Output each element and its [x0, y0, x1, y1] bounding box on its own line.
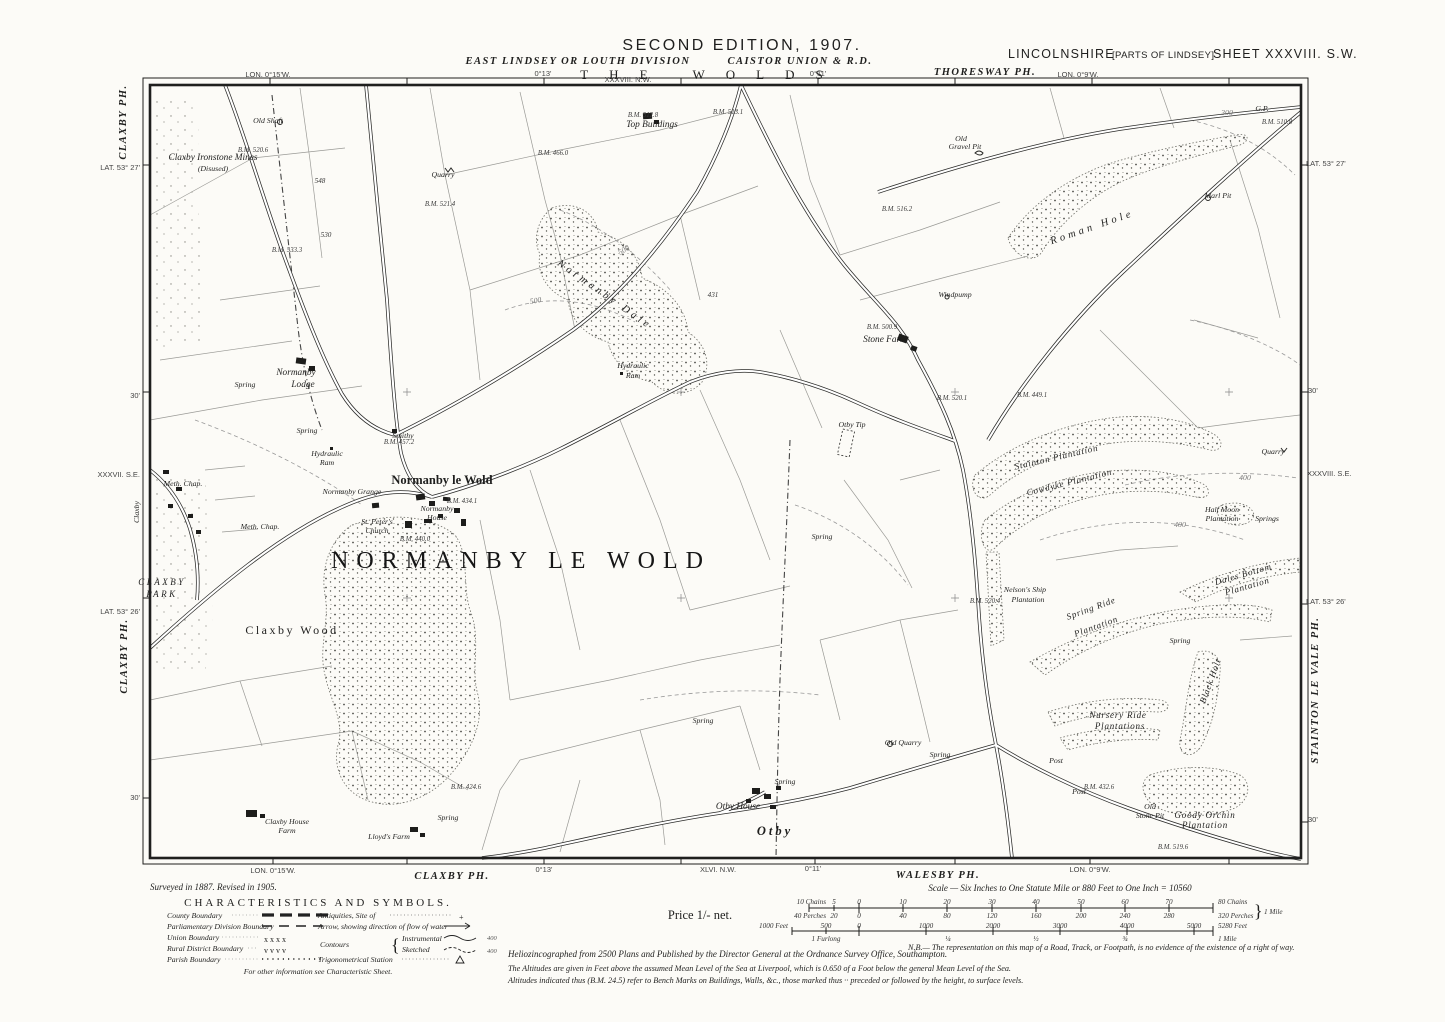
scale-label-18: 160 — [1031, 912, 1042, 920]
scale-label-11: 80 Chains — [1218, 898, 1248, 906]
map-label-4: Top Buildings — [626, 120, 678, 130]
thoresway-parish: THORESWAY PH. — [934, 67, 1036, 78]
margins-label-1: 0°13' — [535, 69, 553, 78]
spots-label-0: 548 — [315, 177, 326, 185]
rights-of-way-note: N.B.— The representation on this map of … — [907, 943, 1294, 952]
map-label-0: Old Shaft — [253, 116, 284, 125]
benchmarks-label-10: B.M. 449.1 — [1017, 392, 1047, 399]
legend-footnote: For other information see Characteristic… — [243, 967, 393, 976]
map-label-10: Windpump — [938, 290, 971, 299]
legend-label-3: Union Boundary — [167, 933, 220, 942]
scale-label-27: 0 — [857, 922, 861, 930]
scale-label-32: 5000 — [1187, 922, 1202, 930]
benchmarks-label-9: B.M. 520.1 — [937, 395, 967, 402]
map-label-30: Meth. Chap. — [240, 522, 280, 531]
legend-label-11: { — [391, 935, 400, 955]
scale-label-20: 240 — [1120, 912, 1131, 920]
altitude-note-2: Altitudes indicated thus (B.M. 24.5) ref… — [507, 976, 1023, 985]
walesby-parish-bottom: WALESBY PH. — [896, 870, 980, 881]
margins-label-18: 30' — [130, 793, 140, 802]
otby-hamlet: Otby — [757, 824, 793, 838]
legend-label-8: Antiquities, Site of — [317, 911, 377, 920]
publication-note: Heliozincographed from 2500 Plans and Pu… — [507, 949, 947, 959]
map-label-60: Old — [1144, 802, 1156, 811]
contours-label-4: 400 — [1174, 520, 1186, 529]
margins-label-16: LAT. 53° 26' — [100, 607, 140, 616]
map-label-49: Plantation — [1011, 595, 1045, 604]
legend-label-7: v v v v — [264, 946, 286, 955]
scale-label-33: 5280 Feet — [1218, 922, 1248, 930]
scale-label-7: 40 — [1032, 898, 1040, 906]
scale-label-6: 30 — [987, 898, 996, 906]
union-rd: CAISTOR UNION & R.D. — [727, 56, 872, 67]
map-label-14: Lodge — [290, 380, 314, 390]
map-label-9: G.P. — [1255, 104, 1268, 113]
margins-label-5: LON. 0°15'W. — [250, 866, 295, 875]
claxby-wood: Claxby Wood — [245, 623, 338, 637]
scale-label-38: 1 Mile — [1218, 935, 1237, 943]
map-label-47: Quarry — [1262, 447, 1285, 456]
scale-label-36: ½ — [1033, 935, 1039, 943]
map-label-38: Spring — [930, 750, 951, 759]
county-title: LINCOLNSHIRE — [1008, 47, 1115, 61]
margins-label-11: LON. 0°9'W. — [1069, 865, 1110, 874]
map-label-44: Half Moon — [1204, 505, 1239, 514]
map-label-67: Farm — [277, 826, 296, 835]
scale-label-1: 10 Chains — [797, 898, 827, 906]
legend-label-12: Instrumental — [401, 934, 442, 943]
map-label-61: Stone Pit — [1136, 811, 1165, 820]
map-label-20: Hydraulic — [616, 361, 649, 370]
margins-label-22: LAT. 53° 26' — [1306, 597, 1346, 606]
stainton-le-vale-parish-right: STAINTON LE VALE PH. — [1310, 617, 1321, 764]
map-label-56: Plantations — [1094, 721, 1145, 731]
map-label-40: Spring — [775, 777, 796, 786]
map-label-26: House — [426, 513, 447, 522]
contours-label-3: 400 — [1239, 473, 1251, 482]
goody-orchin-plantation: Goody Orchin — [1174, 810, 1235, 820]
scale-label-31: 4000 — [1120, 922, 1135, 930]
scale-label-25: 1000 Feet — [759, 922, 789, 930]
margins-label-20: 30' — [1308, 386, 1318, 395]
margins-label-13: LAT. 53° 27' — [100, 163, 140, 172]
map-label-48: Nelson's Ship — [1003, 585, 1046, 594]
map-label-6: Gravel Pit — [949, 142, 983, 151]
legend-label-15: + — [459, 913, 464, 922]
map-label-55: Nursery Ride — [1088, 710, 1146, 720]
scale-statement: Scale — Six Inches to One Statute Mile o… — [928, 883, 1192, 893]
benchmarks-label-3: B.M. 466.0 — [538, 150, 569, 157]
scale-label-12: 40 Perches — [794, 912, 826, 920]
claxby-ironstone-mines: Claxby Ironstone Mines — [169, 153, 258, 163]
legend-label-13: Sketched — [402, 945, 430, 954]
benchmarks-label-8: B.M. 500.9 — [867, 324, 898, 331]
spots-label-2: 431 — [708, 291, 719, 299]
scale-label-5: 20 — [943, 898, 951, 906]
benchmarks-label-13: B.M. 440.0 — [400, 536, 431, 543]
spots-label-1: 530 — [321, 231, 332, 239]
scarp-edge-area — [150, 95, 205, 350]
scale-label-29: 2000 — [986, 922, 1001, 930]
map-label-19: Ram — [319, 458, 335, 467]
claxby-parish-left-lower: CLAXBY PH. — [119, 618, 130, 693]
scale-label-9: 60 — [1121, 898, 1129, 906]
scale-label-26: 500 — [821, 922, 832, 930]
scale-label-37: ¾ — [1122, 935, 1128, 943]
benchmarks-label-1: B.M. 533.3 — [272, 247, 303, 254]
scale-label-10: 70 — [1165, 898, 1173, 906]
contours-label-2: 300 — [1220, 108, 1233, 117]
village-normanby-le-wold: Normanby le Wold — [391, 473, 492, 487]
scale-label-24: 1 Mile — [1264, 908, 1283, 916]
parts-of-lindsey: [PARTS OF LINDSEY] — [1112, 50, 1214, 61]
margins-label-0: LON. 0°15'W. — [245, 70, 290, 79]
map-label-8: Marl Pit — [1204, 191, 1232, 200]
scale-label-17: 120 — [987, 912, 998, 920]
benchmarks-label-15: B.M. 424.6 — [451, 784, 482, 791]
map-label-25: Normanby — [420, 504, 454, 513]
margins-label-24: 30' — [1308, 815, 1318, 824]
map-label-21: Ram — [625, 371, 641, 380]
map-label-16: Spring — [297, 426, 318, 435]
margins-label-14: 30' — [130, 391, 140, 400]
map-label-32: CLAXBY — [138, 577, 186, 587]
map-label-12: Otby Tip — [838, 420, 865, 429]
map-label-28: Church — [365, 526, 388, 535]
legend-label-4: Rural District Boundary — [166, 944, 244, 953]
legend-label-5: Parish Boundary — [166, 955, 221, 964]
scale-label-15: 40 — [899, 912, 907, 920]
scale-label-14: 0 — [857, 912, 861, 920]
benchmarks-label-11: B.M. 457.2 — [384, 439, 415, 446]
scale-label-28: 1000 — [919, 922, 934, 930]
survey-note: Surveyed in 1887. Revised in 1905. — [150, 882, 277, 892]
legend-label-6: x x x x — [264, 935, 286, 944]
map-label-41: Spring — [438, 813, 459, 822]
church-building — [405, 521, 412, 528]
margins-label-19: LAT. 53° 27' — [1306, 159, 1346, 168]
margins-label-4: LON. 0°9'W. — [1057, 70, 1098, 79]
map-label-68: Lloyd's Farm — [367, 832, 410, 841]
claxby-parish-bottom: CLAXBY PH. — [414, 871, 489, 882]
map-label-29: Meth. Chap. — [163, 479, 203, 488]
map-label-15: Spring — [235, 380, 256, 389]
benchmarks-label-17: B.M. 519.6 — [1158, 844, 1189, 851]
scale-label-3: 0 — [857, 898, 861, 906]
benchmarks-label-6: B.M. 516.2 — [882, 206, 913, 213]
map-label-64: Otby House — [716, 802, 760, 812]
scale-label-34: 1 Furlong — [812, 935, 841, 943]
benchmarks-label-7: B.M. 510.8 — [1262, 119, 1293, 126]
scale-label-2: 5 — [832, 898, 836, 906]
scale-label-21: 280 — [1164, 912, 1175, 920]
map-label-46: Springs — [1255, 514, 1279, 523]
map-label-33: PARK — [145, 589, 177, 599]
legend-label-2: Parliamentary Division Boundary — [166, 922, 274, 931]
os-map-sheet: SECOND EDITION, 1907.EAST LINDSEY OR LOU… — [0, 0, 1445, 1022]
margins-label-7: 0°13' — [536, 865, 554, 874]
adjoining-sheet-east: XXXVIII. S.E. — [1307, 469, 1352, 478]
map-label-2: (Disused) — [198, 164, 229, 173]
map-label-57: Old Quarry — [885, 738, 922, 747]
scale-label-30: 3000 — [1052, 922, 1068, 930]
margins-label-9: 0°11' — [805, 864, 822, 873]
margins-label-3: 0°11' — [810, 69, 827, 78]
legend-label-14: Trigonometrical Station — [318, 955, 393, 964]
map-label-3: Quarry — [432, 170, 455, 179]
benchmarks-label-2: B.M. 521.4 — [425, 201, 456, 208]
claxby-parish-left-top: CLAXBY PH. — [118, 84, 129, 159]
adjoining-sheet-west: XXXVII. S.E. — [97, 470, 140, 479]
scale-label-8: 50 — [1077, 898, 1085, 906]
legend-label-10: Contours — [320, 940, 349, 949]
map-label-45: Plantation — [1205, 514, 1239, 523]
scale-label-16: 80 — [943, 912, 951, 920]
map-label-58: Post — [1048, 756, 1064, 765]
benchmarks-label-16: B.M. 432.6 — [1084, 784, 1115, 791]
map-label-18: Hydraulic — [310, 449, 343, 458]
map-label-24: Normanby Grange — [322, 487, 382, 496]
map-label-36: Spring — [812, 532, 833, 541]
goody-orchin-area — [1143, 768, 1248, 816]
benchmarks-label-0: B.M. 520.6 — [238, 147, 269, 154]
normanby-lodge: Normanby — [275, 368, 316, 378]
price: Price 1/- net. — [668, 908, 732, 922]
scale-label-22: 320 Perches — [1217, 912, 1254, 920]
edition-title: SECOND EDITION, 1907. — [622, 37, 861, 54]
scale-label-23: } — [1254, 901, 1263, 921]
benchmarks-label-4: B.M. 512.8 — [628, 112, 659, 119]
legend-label-16: 400 — [487, 935, 498, 942]
map-label-39: Spring — [1170, 636, 1191, 645]
map-label-37: Spring — [693, 716, 714, 725]
benchmarks-label-5: B.M. 513.1 — [713, 109, 743, 116]
adjoining-sheet-north: XXXVIII. N.W. — [605, 75, 652, 84]
sheet-number: SHEET XXXVIII. S.W. — [1213, 47, 1358, 61]
scale-label-19: 200 — [1076, 912, 1087, 920]
benchmarks-label-14: B.M. 520.4 — [970, 598, 1001, 605]
adjoining-sheet-south: XLVI. N.W. — [700, 865, 736, 874]
map-label-63: Plantation — [1181, 820, 1228, 830]
map-label-27: St. Peter's — [361, 517, 393, 526]
altitude-note-1: The Altitudes are given in Feet above th… — [508, 964, 1011, 973]
legend-title: CHARACTERISTICS AND SYMBOLS. — [184, 897, 452, 909]
legend-label-9: Arrow, showing direction of flow of wate… — [317, 922, 449, 931]
parish-name-large: NORMANBY LE WOLD — [331, 548, 711, 574]
legend-label-17: 400 — [487, 948, 498, 955]
benchmarks-label-12: B.M. 434.1 — [447, 498, 477, 505]
legend-label-1: County Boundary — [167, 911, 223, 920]
scale-label-13: 20 — [830, 912, 838, 920]
scale-label-35: ¼ — [945, 935, 951, 943]
map-label-35: Claxby — [132, 500, 141, 523]
map-canvas: SECOND EDITION, 1907.EAST LINDSEY OR LOU… — [0, 0, 1445, 1022]
scale-label-4: 10 — [899, 898, 907, 906]
map-label-11: Stone Farm — [863, 335, 907, 345]
division-left: EAST LINDSEY OR LOUTH DIVISION — [465, 56, 691, 67]
map-label-66: Claxby House — [265, 817, 309, 826]
